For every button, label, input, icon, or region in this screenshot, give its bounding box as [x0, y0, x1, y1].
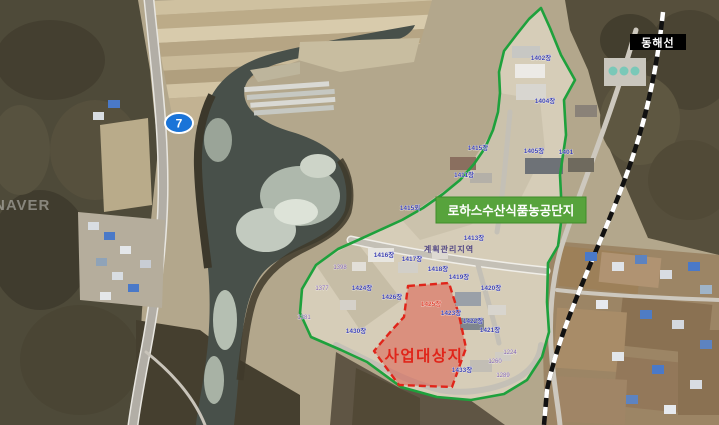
complex-label-text: 로하스수산식품농공단지 — [448, 203, 575, 218]
parcel-label: 1424장 — [352, 283, 372, 292]
route-7-shield: 7 — [165, 113, 193, 133]
zoning-label: 계획관리지역 — [424, 244, 474, 254]
complex-label: 로하스수산식품농공단지 — [436, 197, 586, 223]
parcel-label: 1423장 — [441, 308, 461, 317]
parcel-label: 1430장 — [346, 326, 366, 335]
parcel-label: 1411장 — [454, 170, 474, 179]
project-site-label: 사업대상지 — [385, 347, 464, 365]
parcel-label: 1418장 — [428, 264, 448, 273]
parcel-label: 1433장 — [452, 365, 472, 374]
parcel-label: 1415장 — [468, 143, 488, 152]
parcel-label: 1421장 — [480, 325, 500, 334]
treatment-plant — [604, 58, 646, 86]
parcel-label: 1377 — [315, 286, 329, 292]
parcel-label: 1426장 — [382, 292, 402, 301]
parcel-label: 1260 — [488, 359, 502, 365]
parcel-label: 1402장 — [531, 53, 551, 62]
parcel-label: 1404장 — [535, 96, 555, 105]
railway-label-text: 동해선 — [641, 36, 674, 50]
parcel-label: 1420장 — [481, 283, 501, 292]
parcel-label: 1415외 — [400, 203, 420, 212]
map-canvas: 1402장 1404장 1401 1415장 1405장 1411장 1415외… — [0, 0, 719, 425]
parcel-label: 1417장 — [402, 254, 422, 263]
parcel-label: 1422장 — [463, 316, 483, 325]
railway-label: 동해선 — [630, 34, 686, 50]
parcel-label: 1381 — [297, 315, 311, 321]
parcel-label-site: 1425장 — [421, 299, 441, 308]
parcel-label: 1405장 — [524, 146, 544, 155]
route-7-number: 7 — [176, 117, 183, 131]
parcel-label: 1401 — [559, 149, 574, 156]
parcel-label: 1224 — [503, 350, 517, 356]
parcel-label: 1289 — [496, 373, 510, 379]
parcel-label: 1398 — [333, 265, 347, 271]
parcel-label: 1419장 — [449, 272, 469, 281]
satellite-map: 1402장 1404장 1401 1415장 1405장 1411장 1415외… — [0, 0, 719, 425]
parcel-label: 1416장 — [374, 250, 394, 259]
naver-watermark: NAVER — [0, 197, 50, 214]
parcel-label: 1413장 — [464, 233, 484, 242]
